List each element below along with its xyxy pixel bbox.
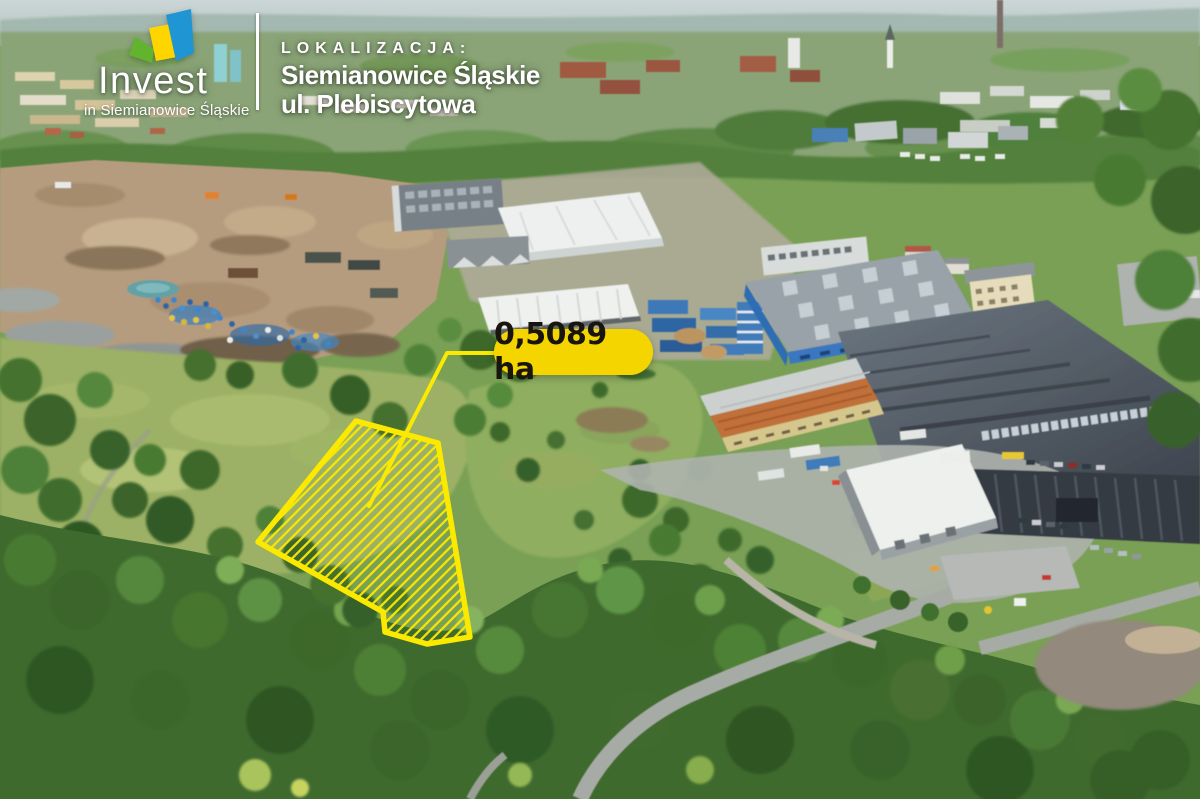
invest-logo-fan-icon [126, 8, 196, 66]
invest-logo: Invest in Siemianowice Śląskie [80, 4, 270, 124]
plot-area-badge: 0,5089 ha [494, 329, 653, 375]
promo-screenshot: 0,5089 ha Invest in Siemianowice Śląskie… [0, 0, 1200, 799]
location-street: ul. Plebiscytowa [281, 90, 540, 119]
logo-title: Invest [98, 60, 208, 103]
logo-subtitle: in Siemianowice Śląskie [84, 102, 250, 119]
header-divider-line [256, 13, 259, 110]
location-heading: LOKALIZACJA: [281, 40, 540, 58]
location-block: LOKALIZACJA: Siemianowice Śląskie ul. Pl… [281, 40, 540, 118]
header-overlay: Invest in Siemianowice Śląskie LOKALIZAC… [0, 0, 560, 130]
plot-area-value: 0,5089 ha [494, 317, 653, 387]
location-city: Siemianowice Śląskie [281, 61, 540, 90]
